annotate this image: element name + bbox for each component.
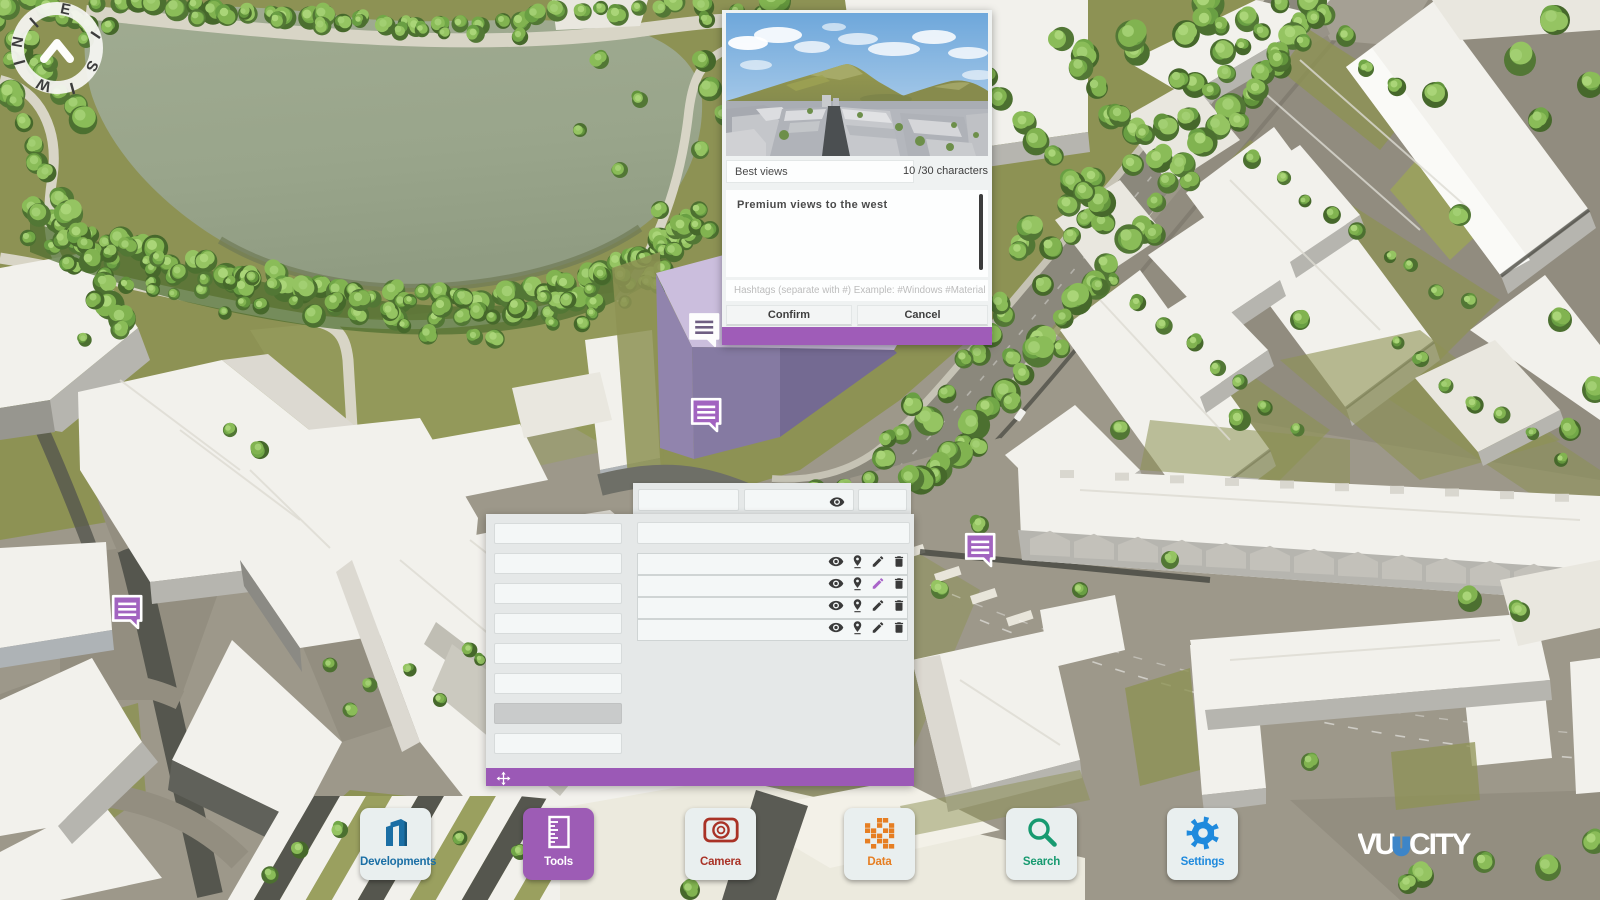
svg-text:VU: VU: [1358, 828, 1395, 861]
svg-text:CITY: CITY: [1409, 828, 1471, 861]
